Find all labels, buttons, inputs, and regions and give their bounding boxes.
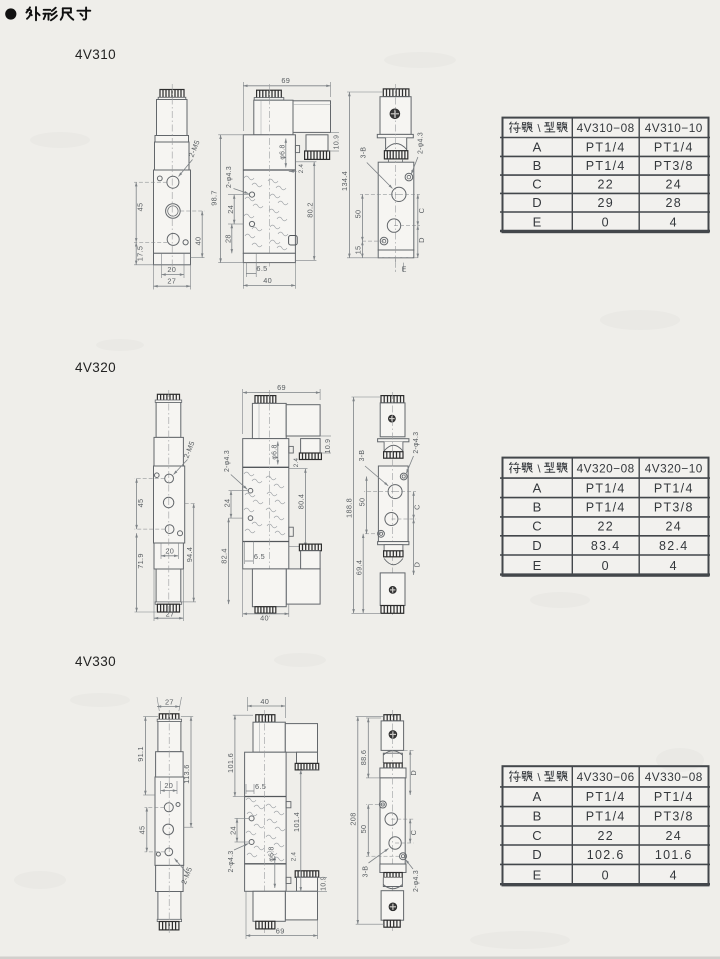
svg-text:40: 40 <box>194 237 203 246</box>
svg-text:22: 22 <box>597 520 614 534</box>
svg-text:29: 29 <box>597 196 614 210</box>
svg-text:4V320−10: 4V320−10 <box>645 462 703 476</box>
svg-text:4V330−06: 4V330−06 <box>577 770 635 784</box>
svg-text:101.6: 101.6 <box>655 848 693 862</box>
svg-text:102.6: 102.6 <box>587 848 625 862</box>
svg-text:28: 28 <box>666 196 683 210</box>
svg-text:2-φ4.3: 2-φ4.3 <box>226 166 233 188</box>
svg-text:22: 22 <box>597 178 614 192</box>
svg-text:A: A <box>533 789 543 804</box>
svg-text:45: 45 <box>136 203 145 212</box>
svg-text:φ6.8: φ6.8 <box>271 444 278 459</box>
svg-text:E: E <box>533 215 543 230</box>
svg-text:24: 24 <box>223 499 232 508</box>
svg-text:82.4: 82.4 <box>220 548 229 564</box>
svg-text:22: 22 <box>597 829 614 843</box>
svg-text:20: 20 <box>164 781 173 790</box>
svg-text:2-φ4.3: 2-φ4.3 <box>413 870 420 892</box>
svg-text:208: 208 <box>349 812 358 825</box>
svg-text:10.9: 10.9 <box>325 439 332 454</box>
svg-text:2.4: 2.4 <box>293 457 300 467</box>
svg-text:80.2: 80.2 <box>305 202 314 218</box>
svg-text:6.5: 6.5 <box>255 782 266 791</box>
svg-text:D: D <box>532 538 542 553</box>
svg-text:4: 4 <box>670 868 678 882</box>
svg-text:101.4: 101.4 <box>292 812 301 832</box>
svg-text:20: 20 <box>165 546 174 555</box>
svg-text:17.5: 17.5 <box>136 246 145 262</box>
svg-text:113.6: 113.6 <box>182 764 191 783</box>
svg-text:134.4: 134.4 <box>340 171 349 191</box>
svg-text:20: 20 <box>167 265 176 274</box>
svg-text:69.4: 69.4 <box>354 560 363 576</box>
svg-text:PT1/4: PT1/4 <box>586 810 626 824</box>
svg-text:15: 15 <box>354 246 363 255</box>
svg-text:PT1/4: PT1/4 <box>654 790 694 804</box>
svg-text:69: 69 <box>277 383 286 392</box>
svg-text:82.4: 82.4 <box>659 539 689 553</box>
svg-text:40: 40 <box>260 697 269 706</box>
svg-text:PT1/4: PT1/4 <box>586 140 626 154</box>
svg-text:PT3/8: PT3/8 <box>654 501 694 515</box>
svg-text:10.9: 10.9 <box>333 135 340 150</box>
svg-text:94.4: 94.4 <box>185 547 194 563</box>
svg-text:4V330−08: 4V330−08 <box>645 770 703 784</box>
svg-text:88.6: 88.6 <box>359 750 368 766</box>
svg-text:D: D <box>409 770 418 776</box>
svg-text:A: A <box>533 480 543 495</box>
svg-text:24: 24 <box>666 520 683 534</box>
svg-text:PT1/4: PT1/4 <box>654 481 694 495</box>
svg-text:10.9: 10.9 <box>321 876 328 891</box>
svg-text:45: 45 <box>136 499 145 508</box>
svg-text:71.9: 71.9 <box>136 553 145 569</box>
svg-text:C: C <box>532 177 542 192</box>
svg-text:2-φ4.3: 2-φ4.3 <box>224 450 231 472</box>
svg-text:PT1/4: PT1/4 <box>586 159 626 173</box>
svg-text:4V320−08: 4V320−08 <box>577 462 635 476</box>
svg-text:A: A <box>533 139 543 154</box>
svg-text:6.5: 6.5 <box>254 552 265 561</box>
svg-text:0: 0 <box>602 216 610 230</box>
svg-text:φ6.8: φ6.8 <box>279 144 286 159</box>
svg-text:PT1/4: PT1/4 <box>586 481 626 495</box>
svg-text:4V330: 4V330 <box>75 654 116 669</box>
svg-text:φ6.8: φ6.8 <box>268 846 275 861</box>
svg-text:69: 69 <box>281 76 290 85</box>
svg-text:4V310−10: 4V310−10 <box>645 121 703 135</box>
svg-text:24: 24 <box>226 205 235 214</box>
svg-text:2.4: 2.4 <box>290 851 297 861</box>
svg-text:2-φ4.3: 2-φ4.3 <box>418 132 425 154</box>
svg-text:188.8: 188.8 <box>345 498 354 518</box>
svg-text:24: 24 <box>666 829 683 843</box>
svg-text:80.4: 80.4 <box>297 494 306 510</box>
svg-text:50: 50 <box>358 498 367 507</box>
svg-text:4: 4 <box>670 216 678 230</box>
svg-text:2.4: 2.4 <box>298 163 305 173</box>
svg-text:PT3/8: PT3/8 <box>654 159 694 173</box>
svg-text:PT1/4: PT1/4 <box>586 501 626 515</box>
svg-text:91.1: 91.1 <box>136 746 145 762</box>
svg-text:E: E <box>402 267 407 274</box>
svg-text:0: 0 <box>602 868 610 882</box>
svg-text:98.7: 98.7 <box>210 190 219 206</box>
svg-text:B: B <box>533 158 543 173</box>
svg-text:4V320: 4V320 <box>75 360 116 375</box>
svg-text:101.6: 101.6 <box>226 753 235 773</box>
svg-text:C: C <box>409 829 418 835</box>
svg-text:27: 27 <box>166 609 175 618</box>
svg-text:D: D <box>532 847 542 862</box>
svg-text:83.4: 83.4 <box>591 539 621 553</box>
svg-text:D: D <box>532 195 542 210</box>
svg-text:PT1/4: PT1/4 <box>654 140 694 154</box>
svg-text:2-φ4.3: 2-φ4.3 <box>228 851 235 873</box>
svg-text:C: C <box>417 207 426 213</box>
svg-text:PT3/8: PT3/8 <box>654 810 694 824</box>
svg-text:C: C <box>413 504 422 510</box>
svg-text:0: 0 <box>602 559 610 573</box>
svg-text:24: 24 <box>666 178 683 192</box>
svg-text:E: E <box>533 558 543 573</box>
svg-text:4V310−08: 4V310−08 <box>577 121 635 135</box>
svg-text:40: 40 <box>263 276 272 285</box>
svg-text:4V310: 4V310 <box>75 47 116 62</box>
svg-text:B: B <box>533 809 543 824</box>
svg-text:C: C <box>532 828 542 843</box>
svg-text:27: 27 <box>165 697 174 706</box>
svg-text:C: C <box>532 519 542 534</box>
svg-text:6.5: 6.5 <box>256 264 267 273</box>
svg-text:69: 69 <box>276 926 285 935</box>
svg-text:24: 24 <box>229 826 238 835</box>
svg-text:50: 50 <box>359 825 368 834</box>
svg-text:40: 40 <box>260 614 269 623</box>
svg-text:3-B: 3-B <box>362 866 369 878</box>
svg-text:PT1/4: PT1/4 <box>586 790 626 804</box>
svg-text:D: D <box>413 562 422 568</box>
svg-text:D: D <box>417 237 426 243</box>
svg-text:4: 4 <box>670 559 678 573</box>
svg-text:E: E <box>533 867 543 882</box>
svg-text:2-φ4.3: 2-φ4.3 <box>413 432 420 454</box>
svg-text:3-B: 3-B <box>361 147 368 159</box>
svg-text:B: B <box>533 500 543 515</box>
svg-text:50: 50 <box>354 210 363 219</box>
svg-text:27: 27 <box>167 277 176 286</box>
svg-text:45: 45 <box>138 826 147 835</box>
svg-text:28: 28 <box>224 234 233 243</box>
svg-text:3-B: 3-B <box>359 450 366 462</box>
